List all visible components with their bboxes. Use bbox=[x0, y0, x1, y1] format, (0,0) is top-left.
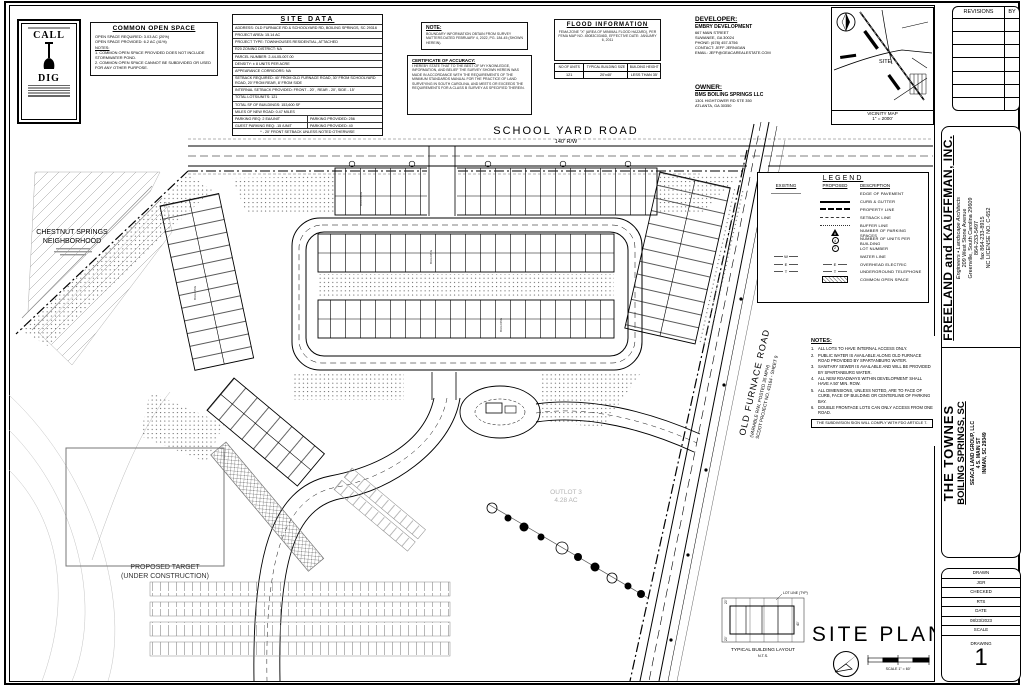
site-data-title: SITE DATA bbox=[233, 15, 382, 24]
note-panel: NOTE: BOUNDARY INFORMATION OBTAIN FROM S… bbox=[421, 22, 528, 50]
site-data-row: INTERNAL SETBACK PROVIDED: FRONT - 20' ,… bbox=[233, 87, 382, 94]
developer-email: EMAIL: JEFF@GEACAREALESTATE.COM bbox=[695, 50, 807, 55]
legend-row: PROPERTY LINE bbox=[762, 206, 924, 214]
north-arrow bbox=[834, 652, 859, 677]
dim-40-right: 40' bbox=[796, 621, 800, 626]
owner-title: OWNER: bbox=[695, 84, 807, 91]
school-yard-road-label: SCHOOL YARD ROAD bbox=[493, 125, 639, 137]
flood-body: FEMA ZONE "X" (AREA OF MINIMAL FLOOD HAZ… bbox=[558, 30, 657, 43]
parking-field bbox=[150, 468, 450, 656]
legend-row: 4NUMBER OF UNITS PER BUILDING bbox=[762, 237, 924, 245]
typical-layout-nts: N.T.S. bbox=[758, 654, 768, 658]
vicinity-site-label: SITE bbox=[879, 59, 892, 65]
grading-contours bbox=[9, 395, 115, 681]
flood-title: FLOOD INFORMATION bbox=[558, 22, 657, 28]
site-data-row: PROJECT AREA: 15.14 AC bbox=[233, 32, 382, 39]
site-data-row: ADDRESS: OLD FURNACE RD & SCHOOLYARD RD,… bbox=[233, 24, 382, 32]
site-plan-title: SITE PLAN bbox=[812, 623, 935, 646]
site-data-row: PROJECT TYPE: TOWNHOUSES RESIDENTIAL, AT… bbox=[233, 39, 382, 46]
shovel-icon bbox=[39, 42, 59, 72]
revisions-empty-row bbox=[953, 85, 1019, 98]
legend-row: EEOVERHEAD ELECTRIC bbox=[762, 260, 924, 268]
townhouse-strip-inner-upper bbox=[318, 234, 614, 272]
developer-block: DEVELOPER: EMBRY DEVELOPMENT 667 MAIN ST… bbox=[695, 16, 807, 74]
stamp-block: DRAWN JGR CHECKED RTS DATE 08/23/2023 SC… bbox=[941, 568, 1021, 682]
flood-col-height: BUILDING HEIGHT bbox=[628, 64, 660, 71]
certificate-title: CERTIFICATE OF ACCURACY: bbox=[412, 58, 527, 63]
revisions-empty-row bbox=[953, 32, 1019, 45]
svg-text:BUILDING: BUILDING bbox=[429, 249, 433, 264]
note-item: 1.ALL LOTS TO HAVE INTERNAL ACCESS ONLY. bbox=[811, 346, 933, 351]
legend-row: WWATER LINE bbox=[762, 252, 924, 260]
developer-title: DEVELOPER: bbox=[695, 16, 807, 23]
outlot-tree-line bbox=[487, 503, 648, 598]
poster-dig-text: DIG bbox=[25, 73, 73, 84]
townhouse-strip-top bbox=[335, 146, 657, 216]
revisions-empty-row bbox=[953, 98, 1019, 110]
drawn-label: DRAWN bbox=[942, 569, 1020, 579]
parking-provided: PARKING PROVIDED: 256 bbox=[307, 116, 382, 122]
guest-parking-provided: PARKING PROVIDED: 40 bbox=[307, 123, 382, 129]
chestnut-label-2: NEIGHBORHOOD bbox=[43, 238, 101, 245]
site-data-panel: SITE DATA ADDRESS: OLD FURNACE RD & SCHO… bbox=[232, 14, 383, 136]
typical-layout-title: TYPICAL BUILDING LAYOUT bbox=[731, 647, 795, 653]
client-addr2: INMAN, SC 29349 bbox=[982, 348, 988, 558]
firm-license: NC LICENSE NO. C-652 bbox=[986, 128, 992, 348]
note-title: NOTE: bbox=[426, 25, 523, 31]
poster-fineprint-bar bbox=[28, 87, 70, 89]
note-item: 4.ALL NEW ROADWAYS WITHIN DEVELOPMENT SH… bbox=[811, 376, 933, 387]
townhouse-strip-inner-lower bbox=[318, 300, 614, 338]
note-item: 3.SANITARY SEWER IS AVAILABLE AND WILL B… bbox=[811, 364, 933, 375]
checked-value: RTS bbox=[942, 598, 1020, 608]
svg-text:BUILDING: BUILDING bbox=[499, 317, 503, 332]
site-data-row: SETBACK REQUIRED: 40' FROM OLD FURNACE R… bbox=[233, 76, 382, 88]
outlot-label-2: 4.28 AC bbox=[554, 497, 577, 504]
scale-label: SCALE bbox=[942, 626, 1020, 636]
firm-name: FREELAND and KAUFFMAN, INC. bbox=[941, 128, 955, 348]
dim-20-left: 20' bbox=[724, 599, 728, 604]
townhouse-strip-left bbox=[160, 194, 254, 371]
legend-panel: LEGEND EXISTING PROPOSED DESCRIPTION EDG… bbox=[757, 172, 929, 303]
legend-existing-header: EXISTING bbox=[762, 183, 810, 188]
scale-bar bbox=[868, 655, 929, 665]
legend-title: LEGEND bbox=[762, 175, 924, 182]
common-open-space-title: COMMON OPEN SPACE bbox=[95, 25, 213, 32]
svg-text:BUILDING: BUILDING bbox=[359, 191, 363, 206]
site-data-row: DENSITY: ± 8 UNITS PER ACRE bbox=[233, 61, 382, 68]
revisions-empty-row bbox=[953, 45, 1019, 58]
site-data-row: MILES OF NEW ROAD: 0.47 MILES bbox=[233, 109, 382, 116]
guest-parking-required: GUEST PARKING REQ: .15 /UNIT bbox=[233, 123, 307, 129]
subdivision-sign-note: THE SUBDIVISION SIGN WILL COMPLY WITH FD… bbox=[811, 419, 933, 428]
poster-call-text: CALL bbox=[25, 30, 73, 41]
scale-text: SCALE 1" = 60' bbox=[886, 667, 911, 671]
poster-fineprint-bar bbox=[28, 92, 70, 94]
date-value: 08/23/2023 bbox=[942, 617, 1020, 627]
note-item: 5.ALL DIMENSIONS, UNLESS NOTED, ARE TO F… bbox=[811, 388, 933, 404]
poster-fineprint-bar bbox=[28, 85, 70, 87]
flood-col-size: TYPICAL BUILDING SIZE bbox=[584, 64, 628, 71]
target-label-1: PROPOSED TARGET bbox=[130, 564, 200, 571]
flood-table: NO OF UNITS TYPICAL BUILDING SIZE BUILDI… bbox=[554, 63, 661, 79]
drawing-number: 1 bbox=[942, 646, 1020, 670]
site-data-row: R20 ZONING DISTRICT: NA bbox=[233, 47, 382, 54]
site-data-row: APPEARANCE CORRIDORS: NA bbox=[233, 68, 382, 75]
certificate-body: I HEREBY STATE THAT TO THE BEST OF MY KN… bbox=[412, 64, 527, 90]
checked-label: CHECKED bbox=[942, 588, 1020, 598]
site-data-row: TOTAL LOTS/UNITS: 121 bbox=[233, 95, 382, 102]
flood-info-panel: FLOOD INFORMATION FEMA ZONE "X" (AREA OF… bbox=[554, 19, 661, 61]
firm-block: FREELAND and KAUFFMAN, INC. Engineers • … bbox=[941, 128, 1021, 348]
owner-block: OWNER: BMS BOILING SPRINGS LLC 1301 HIGH… bbox=[695, 84, 807, 120]
vicinity-scale: 1" = 2000' bbox=[832, 116, 933, 121]
flood-val-height: LESS THAN 35' bbox=[628, 72, 660, 79]
parking-count-symbol: # bbox=[831, 229, 839, 236]
notes-title: NOTES: bbox=[811, 338, 933, 344]
legend-row: EDGE OF PAVEMENT bbox=[762, 190, 924, 198]
guest-parking-row: GUEST PARKING REQ: .15 /UNIT PARKING PRO… bbox=[233, 123, 382, 130]
revisions-empty-row bbox=[953, 72, 1019, 85]
revisions-by-header: BY bbox=[1005, 7, 1019, 18]
date-label: DATE bbox=[942, 607, 1020, 617]
site-data-row: PARCEL NUMBER: 2-44-05-007.00 bbox=[233, 54, 382, 61]
notes-panel: NOTES: 1.ALL LOTS TO HAVE INTERNAL ACCES… bbox=[808, 336, 936, 446]
note-item: 6.DOUBLE FRONTAGE LOTS CAN ONLY ACCESS F… bbox=[811, 405, 933, 416]
vicinity-map-panel: SITE VICINITY MAP 1" = 2000' bbox=[831, 7, 934, 125]
call-before-you-dig-poster: CALL DIG bbox=[17, 19, 81, 124]
chestnut-label-1: CHESTNUT SPRINGS bbox=[36, 229, 108, 236]
plan-sheet: SCHOOL YARD ROAD 140' R/W OLD FURNACE RO… bbox=[0, 0, 1024, 687]
site-data-footnote: * - 20' FRONT SETBACK UNLESS NOTED OTHER… bbox=[233, 129, 382, 135]
lot-line-typ-label: LOT LINE (TYP) bbox=[783, 591, 808, 595]
legend-row: SETBACK LINE bbox=[762, 213, 924, 221]
legend-description-header: DESCRIPTION bbox=[860, 183, 924, 188]
vicinity-map: SITE bbox=[832, 8, 932, 105]
drawn-value: JGR bbox=[942, 579, 1020, 589]
typical-building-layout bbox=[722, 594, 804, 642]
poster-fineprint-bar bbox=[28, 27, 70, 29]
flood-val-units: 121 bbox=[555, 72, 584, 79]
svg-text:BUILDING: BUILDING bbox=[193, 285, 197, 300]
lot-number-symbol: 2 bbox=[832, 245, 839, 252]
common-open-space-panel: COMMON OPEN SPACE OPEN SPACE REQUIRED: 3… bbox=[90, 22, 218, 76]
amenity-area bbox=[460, 386, 540, 438]
target-label-2: (UNDER CONSTRUCTION) bbox=[121, 573, 209, 580]
cos-note-2: 2. COMMON OPEN SPACE CANNOT BE SUBDIVIDE… bbox=[95, 60, 213, 70]
revisions-header: REVISIONS bbox=[953, 7, 1005, 18]
legend-row: TTUNDERGROUND TELEPHONE bbox=[762, 268, 924, 276]
site-data-row: TOTAL SF OF BUILDINGS: 153,600 SF bbox=[233, 102, 382, 109]
revisions-table: REVISIONS BY bbox=[952, 6, 1020, 111]
open-space-swatch bbox=[822, 276, 848, 283]
revisions-empty-row bbox=[953, 58, 1019, 71]
project-block: THE TOWNES BOILING SPRINGS, SC SEACA LAN… bbox=[941, 348, 1021, 558]
legend-row: CURB & GUTTER bbox=[762, 198, 924, 206]
note-item: 2.PUBLIC WATER IS AVAILABLE ALONG OLD FU… bbox=[811, 353, 933, 364]
dim-20-bottom: 20' bbox=[724, 636, 728, 641]
revisions-empty-row bbox=[953, 19, 1019, 32]
units-count-symbol: 4 bbox=[832, 237, 839, 244]
certificate-panel: CERTIFICATE OF ACCURACY: I HEREBY STATE … bbox=[407, 55, 532, 115]
legend-proposed-header: PROPOSED bbox=[810, 183, 860, 188]
legend-row: 2LOT NUMBER bbox=[762, 245, 924, 253]
project-title: THE TOWNES bbox=[941, 348, 956, 558]
note-body: BOUNDARY INFORMATION OBTAIN FROM SURVEY … bbox=[426, 32, 523, 45]
cos-note-1: 1. COMMON OPEN SPACE PROVIDED DOES NOT I… bbox=[95, 50, 213, 60]
project-location: BOILING SPRINGS, SC bbox=[956, 348, 967, 558]
open-space-provided: OPEN SPACE PROVIDED: 6.2 AC (41%) bbox=[95, 39, 213, 44]
legend-row: COMMON OPEN SPACE bbox=[762, 276, 924, 284]
poster-fineprint-bar bbox=[28, 95, 70, 97]
parking-row: PARKING REQ: 2 EA/UNIT PARKING PROVIDED:… bbox=[233, 116, 382, 123]
outlot-label-1: OUTLOT 3 bbox=[550, 489, 582, 496]
flood-val-size: 20'x40' bbox=[584, 72, 628, 79]
flood-col-units: NO OF UNITS bbox=[555, 64, 584, 71]
owner-addr2: ATLANTA, GA 30350 bbox=[695, 103, 807, 108]
poster-fineprint-bar bbox=[28, 90, 70, 92]
school-yard-rw-label: 140' R/W bbox=[555, 139, 578, 145]
parking-required: PARKING REQ: 2 EA/UNIT bbox=[233, 116, 307, 122]
